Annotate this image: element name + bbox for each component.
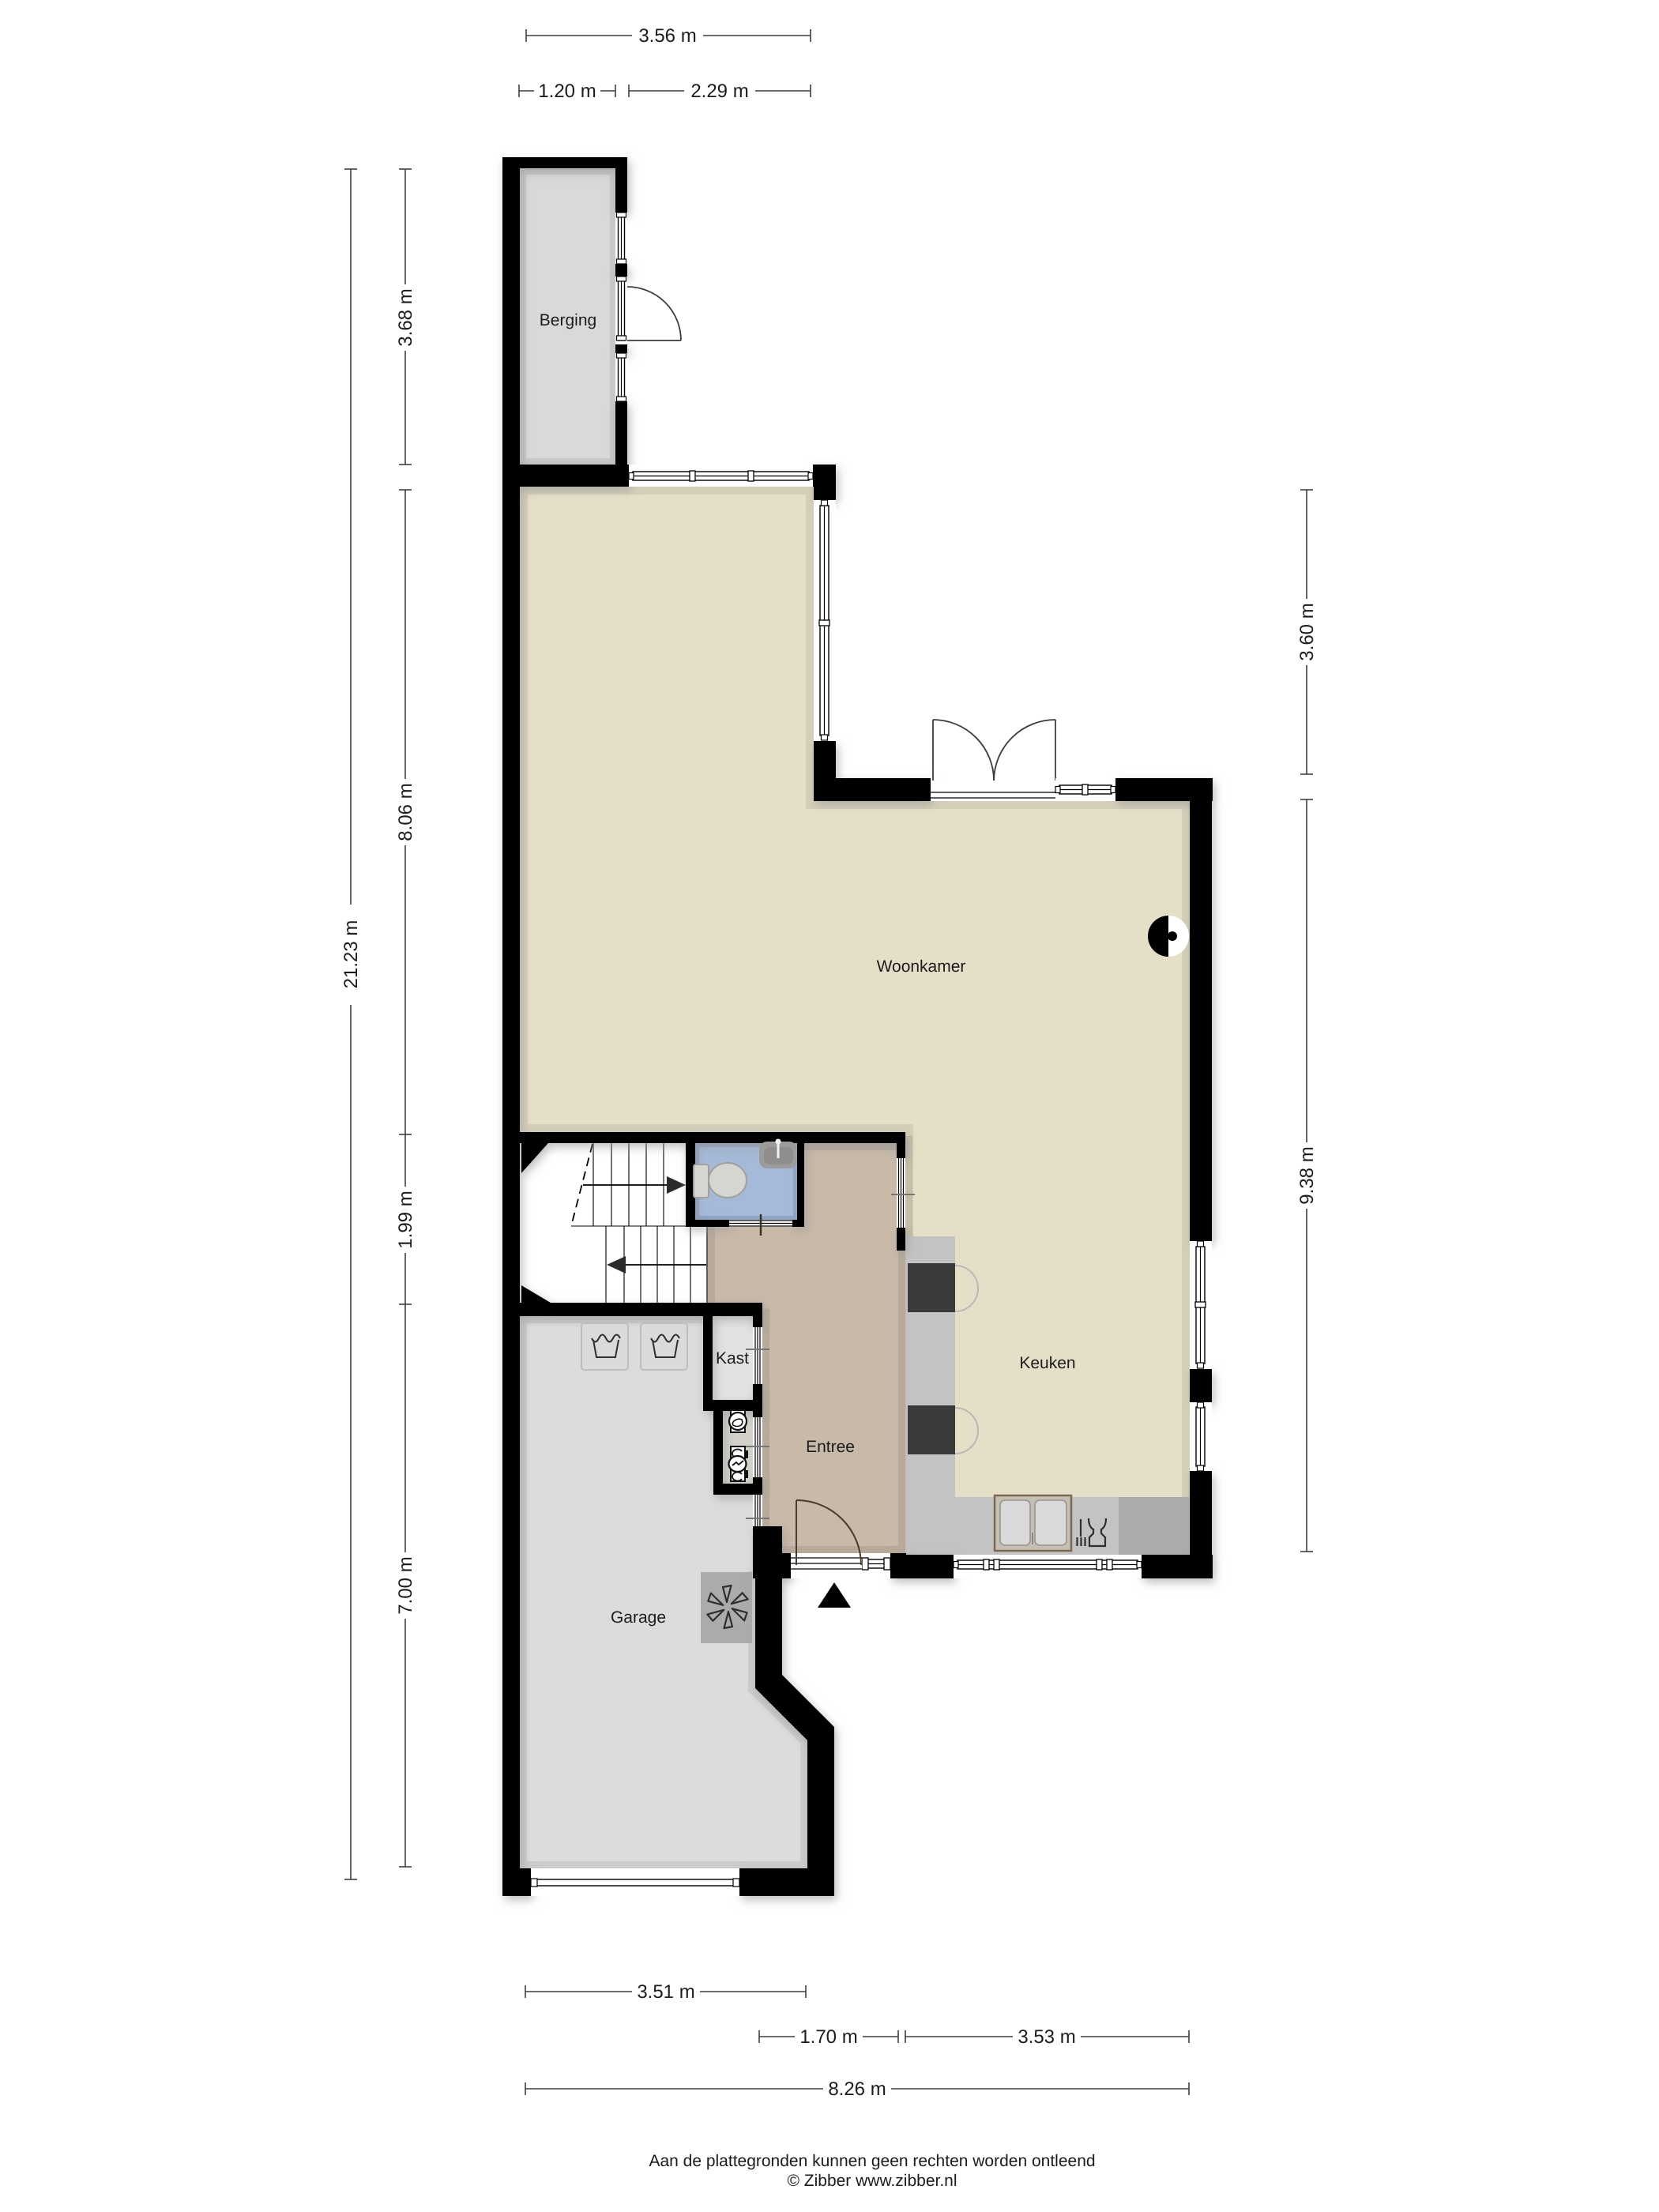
svg-text:21.23 m: 21.23 m <box>340 920 362 989</box>
svg-text:© Zibber www.zibber.nl: © Zibber www.zibber.nl <box>787 2172 957 2190</box>
svg-text:3.68 m: 3.68 m <box>395 288 416 346</box>
svg-text:3.56 m: 3.56 m <box>638 25 696 47</box>
svg-text:Woonkamer: Woonkamer <box>877 957 966 976</box>
svg-text:8.06 m: 8.06 m <box>395 783 416 841</box>
svg-text:9.38 m: 9.38 m <box>1296 1146 1318 1204</box>
svg-text:Keuken: Keuken <box>1019 1354 1075 1372</box>
svg-text:8.26 m: 8.26 m <box>828 2078 886 2100</box>
svg-text:3.60 m: 3.60 m <box>1296 603 1318 660</box>
svg-text:Entree: Entree <box>806 1438 855 1456</box>
svg-text:1.70 m: 1.70 m <box>799 2026 857 2048</box>
svg-text:1.99 m: 1.99 m <box>395 1191 416 1248</box>
svg-text:Kast: Kast <box>716 1349 749 1367</box>
svg-text:7.00 m: 7.00 m <box>395 1556 416 1614</box>
svg-text:Aan de plattegronden kunnen ge: Aan de plattegronden kunnen geen rechten… <box>649 2152 1095 2170</box>
svg-text:3.51 m: 3.51 m <box>637 1981 694 2003</box>
svg-text:3.53 m: 3.53 m <box>1018 2026 1075 2048</box>
svg-text:2.29 m: 2.29 m <box>690 81 748 102</box>
svg-text:Garage: Garage <box>611 1608 666 1627</box>
svg-text:Berging: Berging <box>540 311 596 329</box>
svg-text:1.20 m: 1.20 m <box>538 81 596 102</box>
